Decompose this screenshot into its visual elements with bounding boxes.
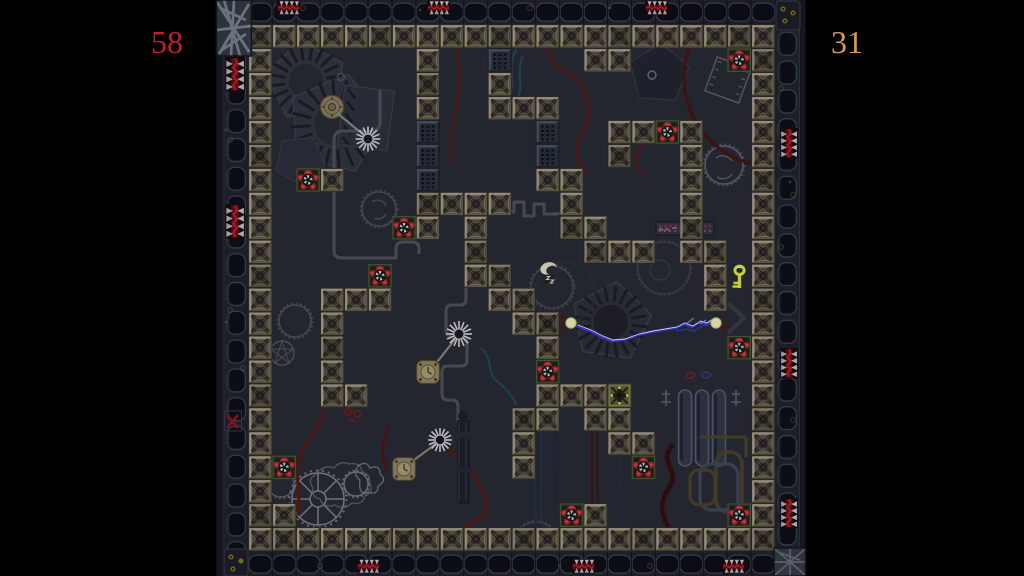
svg-text:58: 58 — [151, 24, 183, 60]
svg-text:31: 31 — [831, 24, 863, 60]
